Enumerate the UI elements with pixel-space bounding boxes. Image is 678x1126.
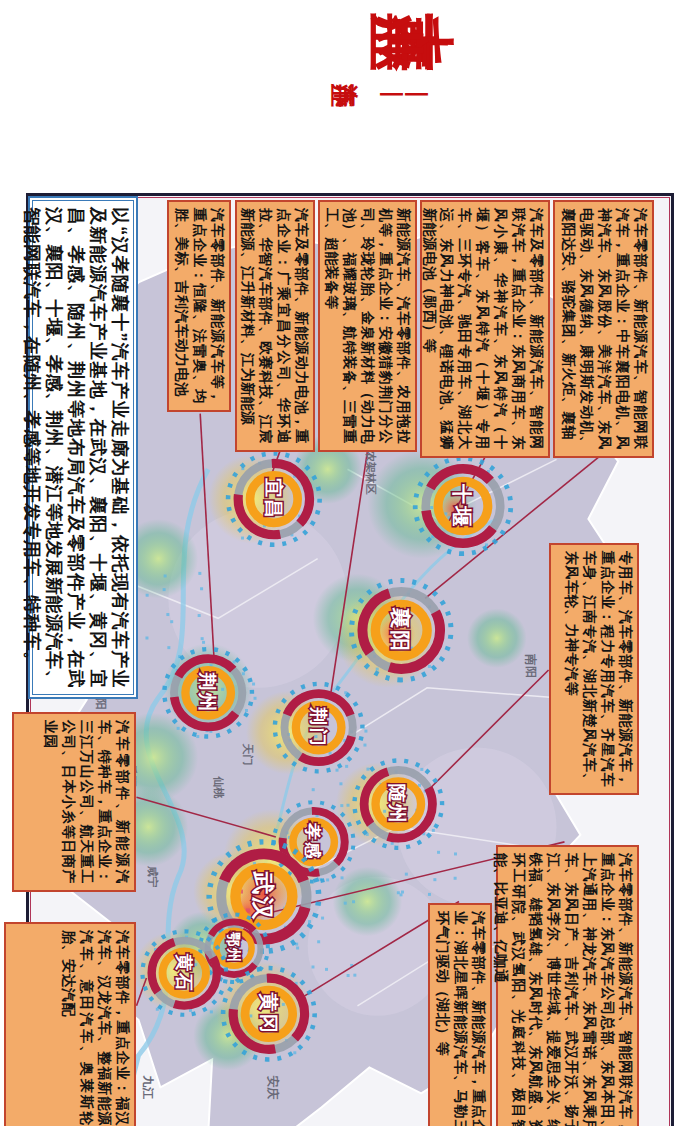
city-label: 荆门 <box>308 706 329 748</box>
town-dot <box>401 891 404 894</box>
town-dot <box>430 506 433 509</box>
town-dot <box>335 769 338 772</box>
callout-suizhou: 专用车、汽车零部件、新能源汽车，重点企业：程力专用汽车、齐星汽车车身、江南专汽、… <box>549 543 639 795</box>
city-label: 随州 <box>387 784 408 825</box>
town-dot <box>353 974 356 977</box>
town-dot <box>347 974 350 977</box>
callout-shiyan: 汽车及零部件、新能源汽车、智能网联汽车，重点企业：东风商用车、东风小康、华神汽车… <box>420 200 550 458</box>
town-dot <box>454 877 457 880</box>
town-dot <box>210 1010 213 1013</box>
town-dot <box>317 940 320 943</box>
town-dot <box>345 765 348 768</box>
town-dot <box>397 891 400 894</box>
callout-huanggang: 汽车零部件、新能源汽车，重点企业：湖北星晖新能源汽车、马勒三环气门驱动（湖北）等 <box>428 903 492 1126</box>
map-label: 南阳 <box>524 653 538 678</box>
town-dot <box>364 730 367 733</box>
town-dot <box>308 920 311 923</box>
town-dot <box>432 829 435 832</box>
callout-xiangyang: 汽车零部件、新能源汽车、智能网联汽车，重点企业：中车襄阳电机、风神汽车、东风股份… <box>553 200 654 458</box>
city-label: 黄冈 <box>258 992 279 1035</box>
town-dot <box>391 842 394 845</box>
town-dot <box>254 697 257 700</box>
screenshot-root: { "title": { "text": "十大重点产业", "subtitle… <box>0 0 678 1126</box>
town-dot <box>249 1014 252 1017</box>
map-label: 仙桃 <box>213 775 225 799</box>
heat-blob <box>467 608 527 668</box>
callout-jingmen: 新能源汽车、汽车零部件、农用拖拉机等，重点企业：安徽猎豹荆门分公司、玲珑轮胎、金… <box>318 200 417 452</box>
town-dot <box>245 709 248 712</box>
town-dot <box>241 537 244 540</box>
town-dot <box>326 878 329 881</box>
town-dot <box>444 512 447 515</box>
city-node-黄冈: 黄冈 <box>223 968 315 1059</box>
city-label: 宜昌 <box>263 478 284 520</box>
town-dot <box>198 614 201 617</box>
town-dot <box>164 574 167 577</box>
town-dot <box>405 873 408 876</box>
town-dot <box>312 788 315 791</box>
callout-intro: 以“汉孝随襄十”汽车产业走廊为基础，依托现有汽车产业及新能源汽车产业基地，在武汉… <box>28 196 138 699</box>
callout-yichang: 汽车及零部件、新能源动力电池，重点企业：广乘宜昌分公司、华环迪拉、华智汽车部件、… <box>235 200 315 452</box>
map-label: 天门 <box>242 743 254 766</box>
page-subtitle: ——汽车产业 <box>370 84 428 107</box>
town-dot <box>201 637 204 640</box>
town-dot <box>352 900 355 903</box>
city-label: 黄石 <box>174 954 194 993</box>
town-dot <box>400 893 403 896</box>
page-title: 十大重点产业 <box>466 12 502 73</box>
town-dot <box>221 688 224 691</box>
town-dot <box>293 1051 296 1054</box>
town-dot <box>252 683 255 686</box>
town-dot <box>321 917 324 920</box>
city-node-宜昌: 宜昌 <box>228 453 320 544</box>
city-label: 襄阳 <box>389 606 412 653</box>
callout-xiaogan: 汽车零部件、新能源汽车、特种车，重点企业：三江万山公司、航天重工公司、日本小糸等… <box>12 712 136 892</box>
callout-jingzhou: 汽车零部件、新能源汽车等，重点企业：恒隆、法雷奥、均胜、美标、吉利汽车动力电池 <box>167 200 231 412</box>
city-label: 孝感 <box>303 822 322 860</box>
town-dot <box>163 588 166 591</box>
town-dot <box>340 804 343 807</box>
map-label: 安庆 <box>266 1075 280 1099</box>
town-dot <box>433 878 436 881</box>
town-dot <box>196 735 199 738</box>
town-dot <box>146 594 149 597</box>
town-dot <box>437 851 440 854</box>
town-dot <box>202 641 205 644</box>
town-dot <box>170 620 173 623</box>
town-dot <box>282 1003 285 1006</box>
town-dot <box>166 613 169 616</box>
city-label: 荆州 <box>197 671 218 713</box>
city-label: 十堰 <box>451 483 473 528</box>
town-dot <box>420 768 423 771</box>
town-dot <box>325 968 328 971</box>
city-label: 武汉 <box>250 871 276 922</box>
infographic-stage: 十大重点产业 ——汽车产业 神农架林区南阳岳阳益阳九江安庆咸宁天门仙桃十堰襄阳宜… <box>0 0 678 1126</box>
town-dot <box>363 744 366 747</box>
town-dot <box>194 963 197 966</box>
map-label: 九江 <box>141 1074 155 1099</box>
town-dot <box>344 902 347 905</box>
city-label: 鄂州 <box>226 932 242 964</box>
town-dot <box>428 665 431 668</box>
town-dot <box>339 782 342 785</box>
callout-huangshi: 汽车零部件，重点企业：福汉汽车、汉龙汽车、整福新能源汽车、意田汽车、奥莱斯轮胎、… <box>4 922 136 1126</box>
town-dot <box>198 572 201 575</box>
town-dot <box>341 876 344 879</box>
town-dot <box>454 852 457 855</box>
map-label: 咸宁 <box>147 865 159 888</box>
town-dot <box>376 668 379 671</box>
town-dot <box>242 672 245 675</box>
town-dot <box>428 893 431 896</box>
town-dot <box>200 587 203 590</box>
town-dot <box>366 768 369 771</box>
urban-dot <box>246 908 250 912</box>
town-dot <box>383 810 386 813</box>
town-dot <box>145 637 148 640</box>
town-dot <box>311 966 314 969</box>
town-dot <box>177 727 180 730</box>
callout-wuhan: 汽车零部件、新能源汽车、智能网联汽车，重点企业：东风汽车公司总部、东风本田、上汽… <box>496 845 639 1126</box>
town-dot <box>167 646 170 649</box>
town-dot <box>296 947 299 950</box>
town-dot <box>347 804 350 807</box>
